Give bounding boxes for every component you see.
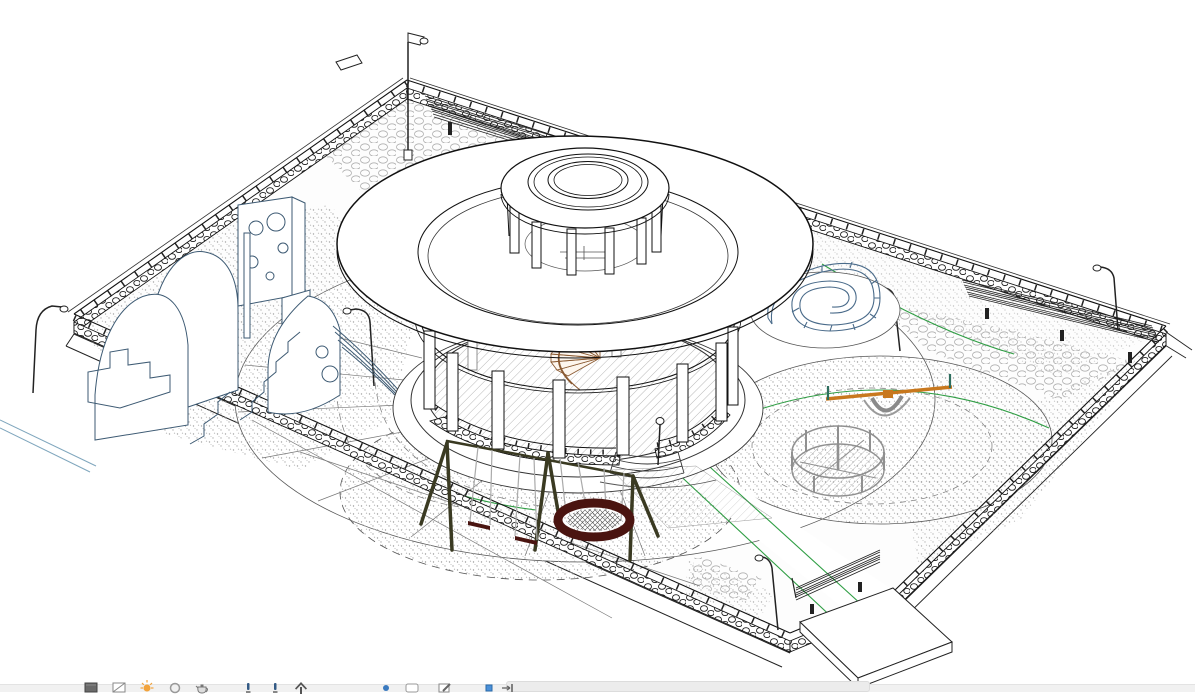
properties-dot-icon[interactable]	[378, 679, 394, 695]
3d-view-canvas[interactable]	[0, 0, 1195, 691]
analytical-model-icon[interactable]	[481, 679, 497, 695]
status-panel	[506, 681, 870, 692]
crop-view-icon[interactable]	[293, 679, 309, 695]
merry-go-round[interactable]	[792, 426, 884, 496]
hide-isolate-icon[interactable]	[240, 679, 256, 695]
view-control-bar	[0, 676, 1195, 691]
detail-level-icon[interactable]	[111, 679, 127, 695]
rendering-icon[interactable]	[194, 679, 210, 695]
edit-box-icon[interactable]	[437, 679, 453, 695]
corner-bench[interactable]	[336, 55, 362, 70]
sun-path-icon[interactable]	[139, 679, 155, 695]
drawing-area[interactable]	[0, 0, 1195, 691]
lamp-left	[33, 306, 68, 393]
visual-style-icon[interactable]	[83, 679, 99, 695]
curb-lines	[0, 420, 96, 472]
displacement-icon[interactable]	[500, 679, 516, 695]
reveal-hidden-icon[interactable]	[267, 679, 283, 695]
shadows-icon[interactable]	[167, 679, 183, 695]
temporary-view-icon[interactable]	[404, 679, 420, 695]
